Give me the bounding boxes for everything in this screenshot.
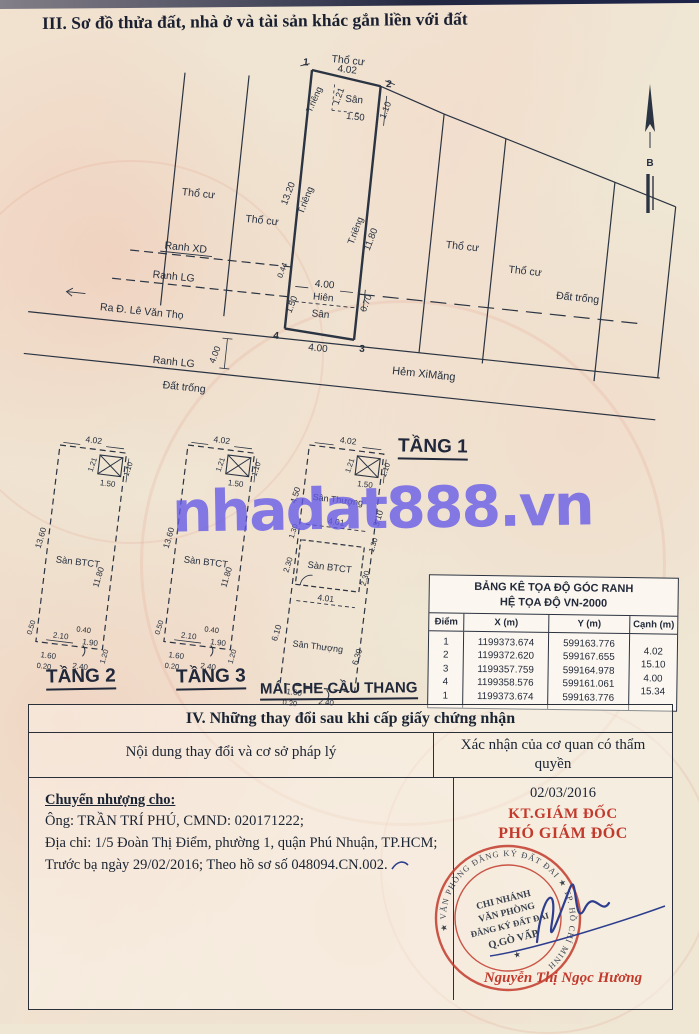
dim-label: 1.20 bbox=[98, 648, 111, 665]
cell-canh: 4.02 bbox=[630, 645, 677, 659]
dim-label: 4.02 bbox=[85, 434, 103, 446]
cell-canh: 4.00 bbox=[629, 672, 676, 686]
dim-label: 1.50 bbox=[99, 478, 116, 489]
coordinate-table: BẢNG KÊ TỌA ĐỘ GÓC RANH HỆ TỌA ĐỘ VN-200… bbox=[427, 574, 679, 712]
cell-x: 1199357.759 bbox=[464, 662, 548, 677]
dim-label: 4.01 bbox=[317, 592, 335, 604]
dim-label: 2.10 bbox=[180, 631, 197, 642]
cell-x: 1199373.674 bbox=[463, 689, 547, 704]
col-canh: 4.02 15.10 4.00 15.34 bbox=[629, 634, 677, 711]
cell-x: 1199358.576 bbox=[463, 676, 547, 691]
dim-label: 13.60 bbox=[33, 526, 49, 550]
col-diem: 1 2 3 4 1 bbox=[428, 631, 464, 708]
confirmation-cell: 02/03/2016 KT.GIÁM ĐỐC PHÓ GIÁM ĐỐC ★ VĂ… bbox=[453, 778, 672, 1000]
transfer-line1: Ông: TRẦN TRÍ PHÚ, CMND: 020171222; bbox=[45, 811, 439, 833]
col-y: 599163.776 599167.655 599164.978 599161.… bbox=[548, 633, 630, 711]
dim-label: 0.40 bbox=[204, 624, 220, 635]
dim-label: 4.02 bbox=[339, 435, 357, 447]
coord-title-line2: HỆ TỌA ĐỘ VN-2000 bbox=[431, 594, 675, 612]
dim-label: 1.90 bbox=[82, 637, 99, 648]
dim-label: 4.02 bbox=[213, 434, 231, 446]
cell-diem: 4 bbox=[428, 675, 462, 689]
dim-label: 1.10 bbox=[250, 461, 263, 478]
section4-body: Chuyển nhượng cho: Ông: TRẦN TRÍ PHÚ, CM… bbox=[29, 778, 672, 1000]
cell-diem: 3 bbox=[429, 662, 463, 676]
coord-table-body: 1 2 3 4 1 1199373.674 1199372.620 119935… bbox=[428, 631, 677, 711]
col2-header: Xác nhận của cơ quan có thẩm quyền bbox=[433, 733, 672, 777]
dim-label: 0.40 bbox=[76, 624, 92, 635]
coordinate-table-title: BẢNG KÊ TỌA ĐỘ GÓC RANH HỆ TỌA ĐỘ VN-200… bbox=[429, 575, 678, 616]
dim-label: 2.30 bbox=[282, 556, 295, 574]
col-header-y: Y (m) bbox=[549, 615, 630, 633]
section4-title: IV. Những thay đổi sau khi cấp giấy chứn… bbox=[29, 705, 672, 733]
col1-header: Nội dung thay đổi và cơ sở pháp lý bbox=[29, 733, 433, 777]
cell-y: 599164.978 bbox=[549, 664, 629, 679]
dim-label: 2.30 bbox=[359, 569, 372, 587]
cell-x: 1199372.620 bbox=[464, 649, 548, 664]
cell-y: 599161.061 bbox=[548, 677, 628, 692]
dim-label: 1.21 bbox=[86, 456, 99, 473]
tang1-title: TẦNG 1 bbox=[398, 435, 468, 458]
pen-flourish-icon bbox=[390, 858, 410, 871]
dim-label: 0.50 bbox=[153, 619, 166, 636]
dim-label: 1.60 bbox=[40, 650, 57, 661]
col-x: 1199373.674 1199372.620 1199357.759 1199… bbox=[463, 631, 549, 709]
area-label: Sân Thượng bbox=[292, 638, 344, 654]
signature bbox=[482, 850, 672, 965]
dim-label: 1.90 bbox=[210, 637, 227, 648]
cell-y: 599163.776 bbox=[549, 637, 629, 652]
tang3-title: TẦNG 3 bbox=[176, 665, 246, 688]
kt-giam-doc: KT.GIÁM ĐỐC bbox=[454, 806, 672, 823]
cell-diem: 1 bbox=[428, 689, 462, 703]
cell-canh: 15.34 bbox=[629, 685, 676, 699]
cell-diem: 2 bbox=[429, 648, 463, 662]
col-header-diem: Điểm bbox=[429, 613, 464, 630]
signer-name: Nguyễn Thị Ngọc Hương bbox=[454, 970, 672, 987]
dim-label: 0.50 bbox=[25, 619, 38, 636]
area-label: Sàn BTCT bbox=[55, 554, 101, 570]
transfer-heading: Chuyển nhượng cho: bbox=[45, 792, 175, 808]
dim-label: 6.10 bbox=[269, 623, 283, 642]
dim-label: 6.30 bbox=[350, 647, 364, 666]
cell-y: 599167.655 bbox=[549, 650, 629, 665]
dim-label: 1.21 bbox=[214, 456, 227, 473]
section4-column-headers: Nội dung thay đổi và cơ sở pháp lý Xác n… bbox=[29, 733, 672, 778]
area-label: Sàn BTCT bbox=[183, 554, 229, 570]
col-header-x: X (m) bbox=[464, 613, 549, 631]
cell-x: 1199373.674 bbox=[464, 635, 548, 650]
dim-label: 1.10 bbox=[122, 461, 135, 478]
confirmation-date: 02/03/2016 bbox=[454, 785, 672, 802]
area-label: Sàn BTCT bbox=[307, 560, 353, 576]
dim-label: 1.21 bbox=[343, 457, 356, 474]
transfer-line2: Địa chỉ: 1/5 Đoàn Thị Điểm, phường 1, qu… bbox=[45, 833, 439, 855]
transfer-line3: Trước bạ ngày 29/02/2016; Theo hồ sơ số … bbox=[45, 855, 439, 877]
section4-table: IV. Những thay đổi sau khi cấp giấy chứn… bbox=[28, 704, 673, 1010]
tang2-title: TẦNG 2 bbox=[46, 665, 116, 688]
cell-canh: 15.10 bbox=[630, 658, 677, 672]
transfer-content: Chuyển nhượng cho: Ông: TRẦN TRÍ PHÚ, CM… bbox=[29, 778, 453, 1000]
cell-diem: 1 bbox=[429, 635, 463, 649]
dim-label: 1.20 bbox=[226, 648, 239, 665]
dim-label: 2.10 bbox=[52, 631, 69, 642]
col-header-canh: Cạnh (m) bbox=[630, 616, 677, 634]
mai-che-title: MÁI CHE CẦU THANG bbox=[260, 679, 418, 697]
watermark: nhadat888.vn bbox=[171, 472, 593, 545]
dim-label: 1.60 bbox=[168, 650, 185, 661]
